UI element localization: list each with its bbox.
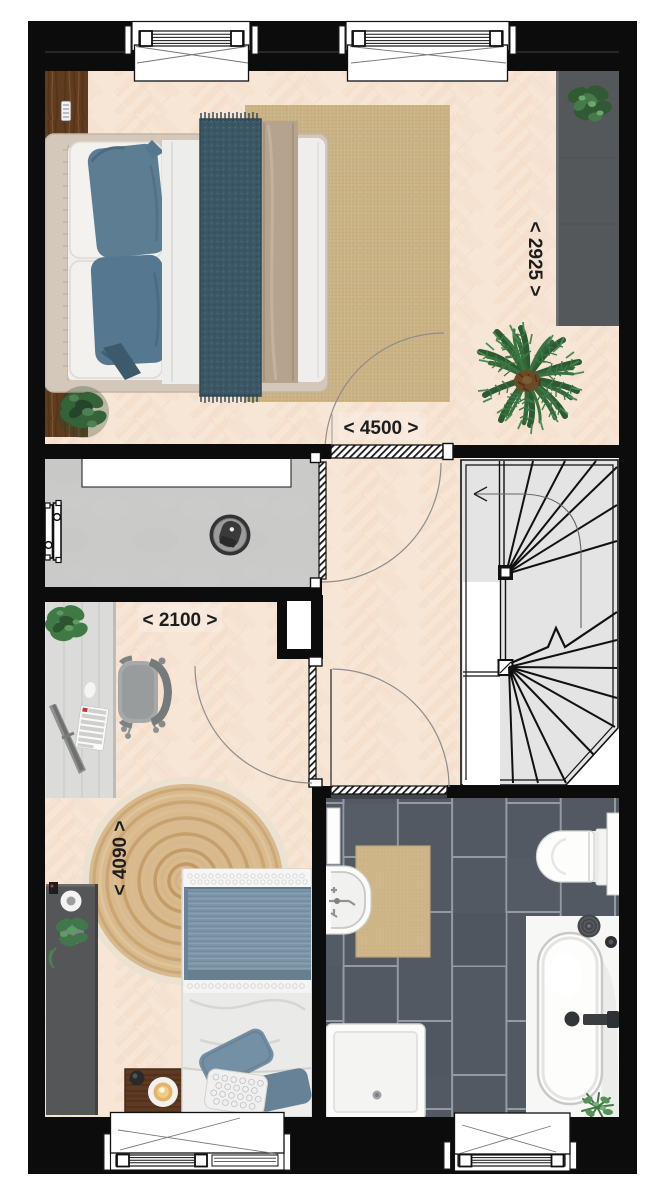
svg-text:< 2925 >: < 2925 > xyxy=(524,221,545,296)
svg-text:< 4500 >: < 4500 > xyxy=(343,418,418,439)
svg-text:< 2100 >: < 2100 > xyxy=(142,610,217,631)
svg-text:< 4090 >: < 4090 > xyxy=(110,820,131,895)
